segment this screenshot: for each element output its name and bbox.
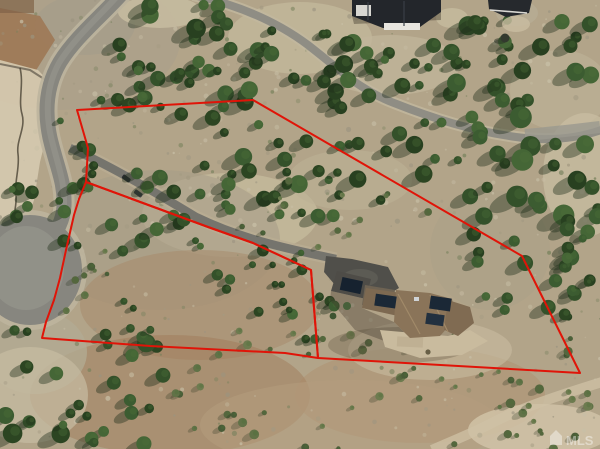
watermark-text: MLS (566, 433, 594, 448)
aerial-photo: MLS (0, 0, 600, 449)
small-outbuilding (501, 34, 510, 43)
aerial-photo-canvas: MLS (0, 0, 600, 449)
skylight (414, 297, 419, 301)
